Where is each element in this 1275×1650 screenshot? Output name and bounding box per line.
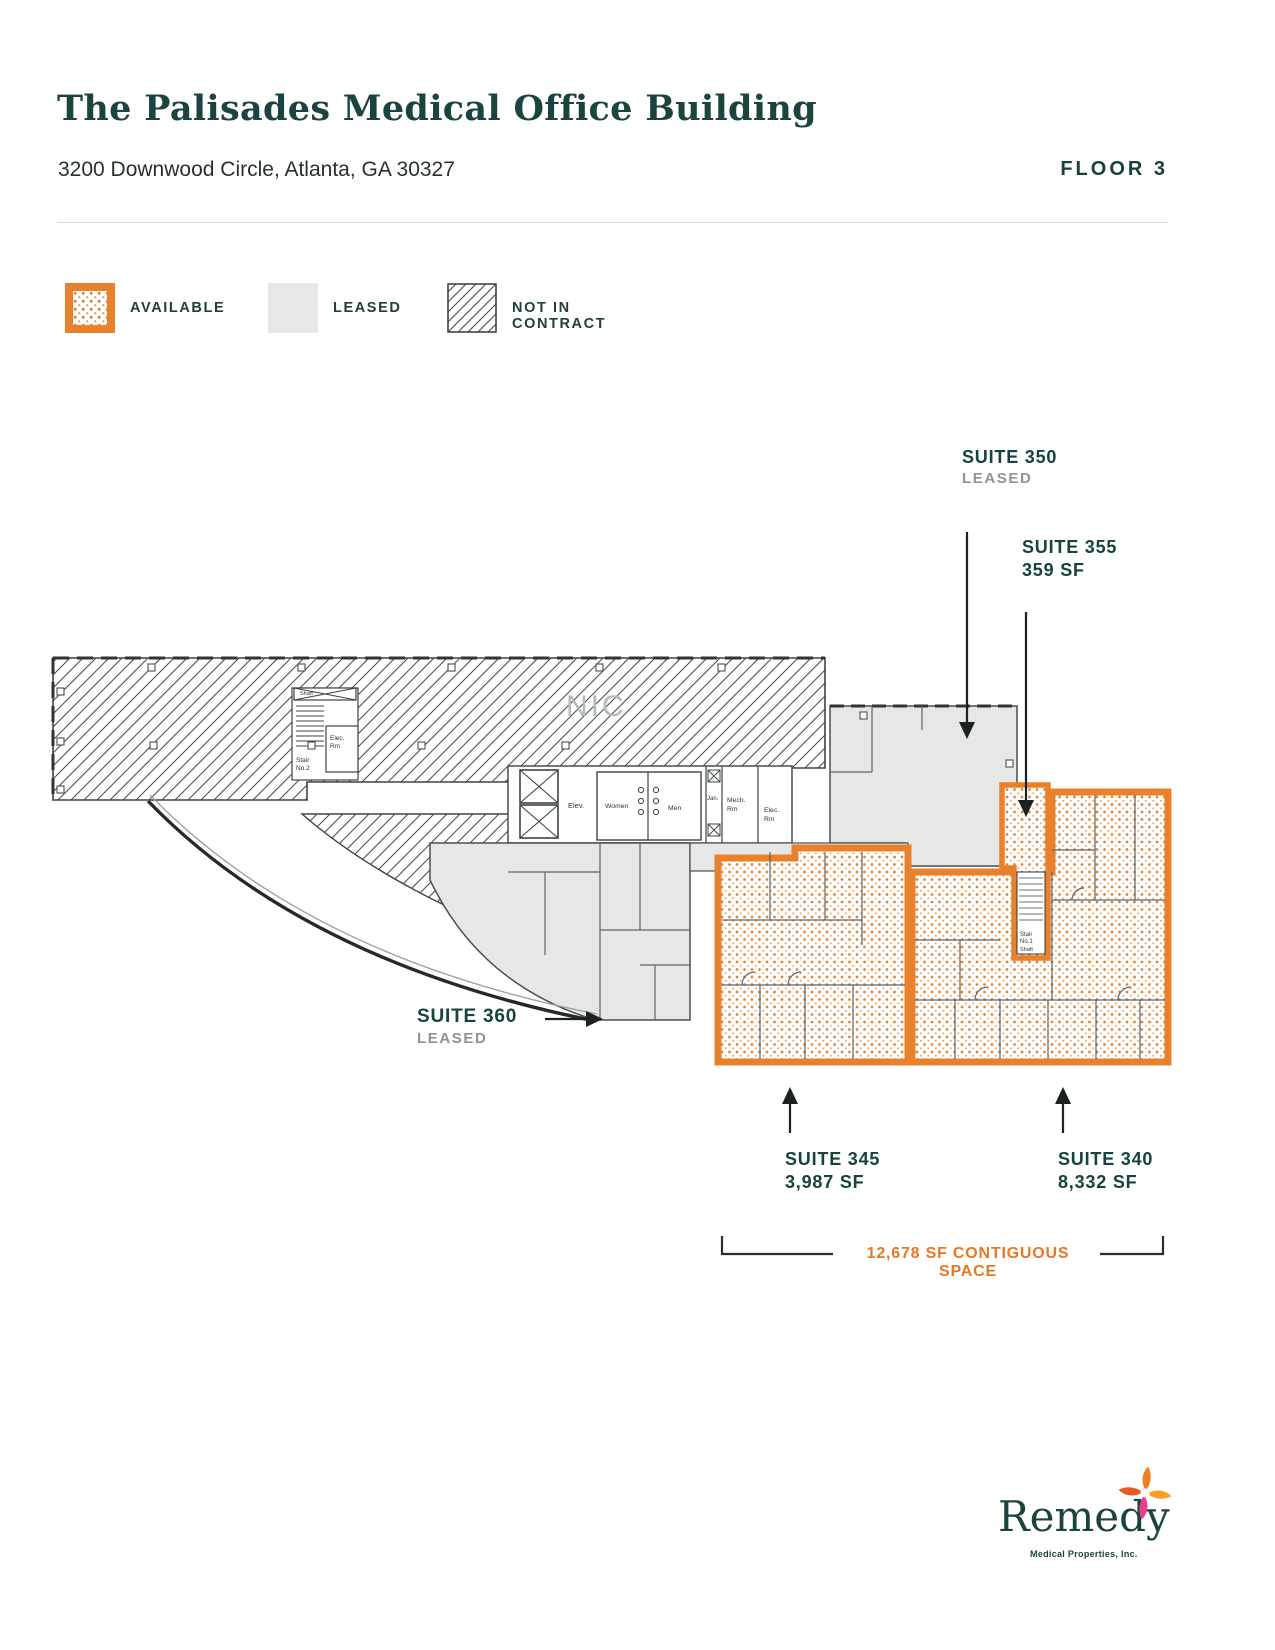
men-restroom-label: Men [668,805,681,812]
suite-355-name: SUITE 355 [1022,534,1117,560]
suite-355-area: 359 SF [1022,560,1117,581]
elec-rm-label-line2: Rm [764,816,775,823]
janitor-label: Jan. [707,796,719,802]
women-restroom-label: Women [605,803,629,810]
remedy-logo: Remedy Medical Properties, Inc. [998,1464,1198,1564]
suite-350-name: SUITE 350 [962,444,1057,470]
callout-suite-345: SUITE 345 3,987 SF [785,1146,880,1193]
nic-label: NIC [566,690,627,723]
elec-rm-2-label-line2: Rm [330,743,340,750]
suite-340-name: SUITE 340 [1058,1146,1153,1172]
stair1-label-line2: No.1 [1020,939,1033,945]
callout-suite-355: SUITE 355 359 SF [1022,534,1117,581]
suite-340-area: 8,332 SF [1058,1172,1153,1193]
mech-rm-label-line2: Rm [727,806,738,813]
stair1-shaft-label: Shaft [1020,947,1033,953]
suite-345-name: SUITE 345 [785,1146,880,1172]
stair2-shaft-label: Shaft [300,691,313,697]
suite-345-region [718,848,908,1062]
floor-plan: NIC Elec. Rm Stair No.2 Shaft [0,0,1275,1650]
elec-rm-label-line1: Elec. [764,807,779,814]
suite-360-name: SUITE 360 [417,1004,517,1030]
mech-rm-label-line1: Mech. [727,797,746,804]
stair2-label-line1: Stair [296,757,310,764]
stair2-label-line2: No.2 [296,765,310,772]
elevator-label: Elev. [568,801,584,810]
stair-2: Elec. Rm Stair No.2 Shaft [292,688,358,780]
remedy-logo-tagline: Medical Properties, Inc. [1030,1549,1138,1559]
callout-suite-340: SUITE 340 8,332 SF [1058,1146,1153,1193]
stair1-label-line1: Stair [1020,932,1032,938]
remedy-pinwheel-icon [1116,1464,1174,1522]
elec-rm-2-label-line1: Elec. [330,735,345,742]
flyer-page: The Palisades Medical Office Building 32… [0,0,1275,1650]
contiguous-space-label: 12,678 SF CONTIGUOUS SPACE [838,1245,1098,1281]
callout-suite-360: SUITE 360 LEASED [417,1004,517,1047]
suite-345-area: 3,987 SF [785,1172,880,1193]
suite-360-status: LEASED [417,1030,517,1047]
suite-350-status: LEASED [962,470,1057,487]
callout-suite-350: SUITE 350 LEASED [962,444,1057,487]
